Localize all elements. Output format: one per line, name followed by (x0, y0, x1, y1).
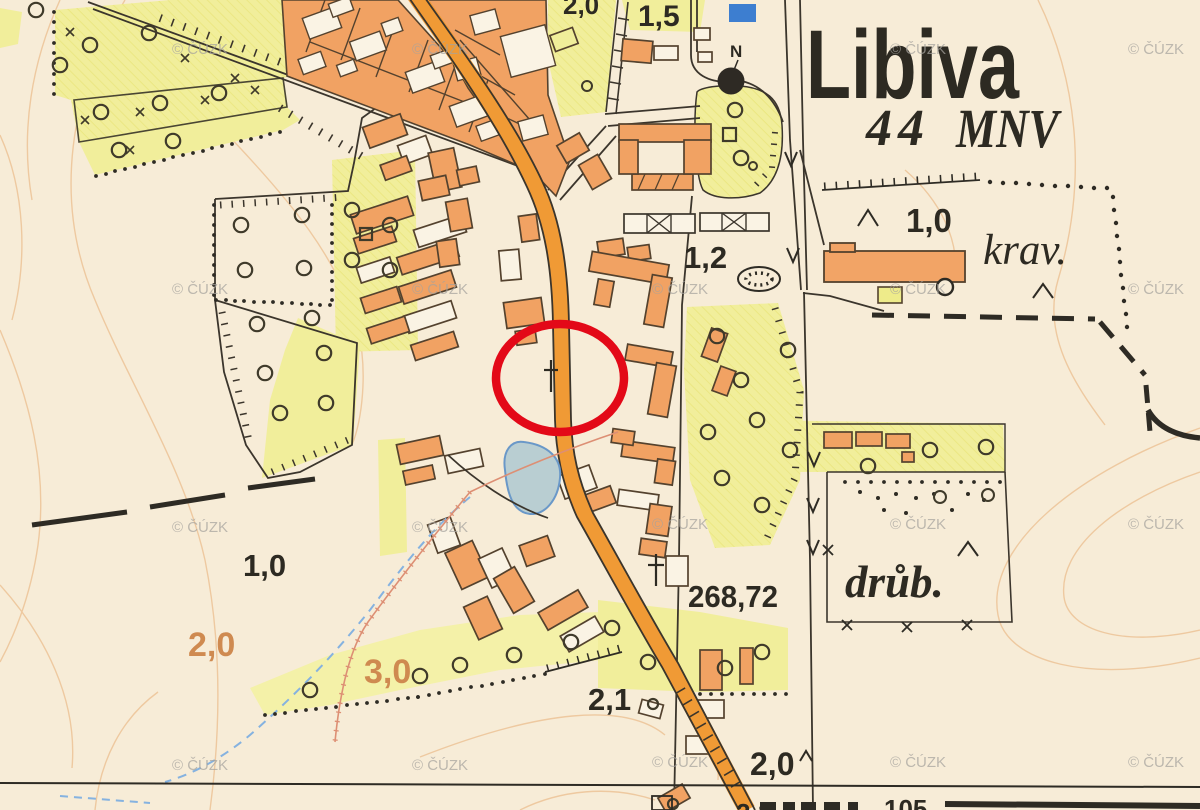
svg-text:krav.: krav. (983, 227, 1067, 274)
svg-text:1,0: 1,0 (243, 548, 286, 583)
svg-text:© ČÚZK: © ČÚZK (412, 41, 468, 58)
svg-text:1,0: 1,0 (906, 202, 952, 239)
svg-text:2,1: 2,1 (588, 682, 631, 717)
svg-text:© ČÚZK: © ČÚZK (172, 41, 228, 58)
svg-text:© ČÚZK: © ČÚZK (1128, 516, 1184, 533)
svg-text:MNV: MNV (955, 98, 1062, 159)
svg-text:© ČÚZK: © ČÚZK (172, 757, 228, 774)
svg-text:3,0: 3,0 (364, 653, 411, 691)
svg-text:2,0: 2,0 (563, 0, 599, 20)
svg-text:© ČÚZK: © ČÚZK (652, 281, 708, 298)
svg-text:2,0: 2,0 (188, 626, 235, 664)
svg-text:268,72: 268,72 (688, 580, 778, 614)
svg-text:© ČÚZK: © ČÚZK (412, 757, 468, 774)
svg-text:1,5: 1,5 (638, 0, 680, 33)
svg-text:© ČÚZK: © ČÚZK (1128, 41, 1184, 58)
svg-text:© ČÚZK: © ČÚZK (412, 519, 468, 536)
svg-text:© ČÚZK: © ČÚZK (890, 281, 946, 298)
svg-text:© ČÚZK: © ČÚZK (652, 516, 708, 533)
svg-text:© ČÚZK: © ČÚZK (172, 281, 228, 298)
svg-text:© ČÚZK: © ČÚZK (1128, 754, 1184, 771)
svg-text:© ČÚZK: © ČÚZK (172, 519, 228, 536)
svg-text:105: 105 (884, 794, 927, 810)
svg-text:44: 44 (865, 100, 930, 157)
svg-text:© ČÚZK: © ČÚZK (1128, 281, 1184, 298)
svg-text:© ČÚZK: © ČÚZK (412, 281, 468, 298)
svg-text:1,2: 1,2 (684, 240, 727, 275)
svg-text:© ČÚZK: © ČÚZK (890, 41, 946, 58)
svg-text:© ČÚZK: © ČÚZK (890, 754, 946, 771)
svg-text:N: N (730, 42, 742, 61)
svg-text:drůb.: drůb. (845, 557, 944, 607)
svg-text:© ČÚZK: © ČÚZK (652, 754, 708, 771)
svg-text:© ČÚZK: © ČÚZK (890, 516, 946, 533)
svg-text:2,0: 2,0 (750, 746, 794, 782)
